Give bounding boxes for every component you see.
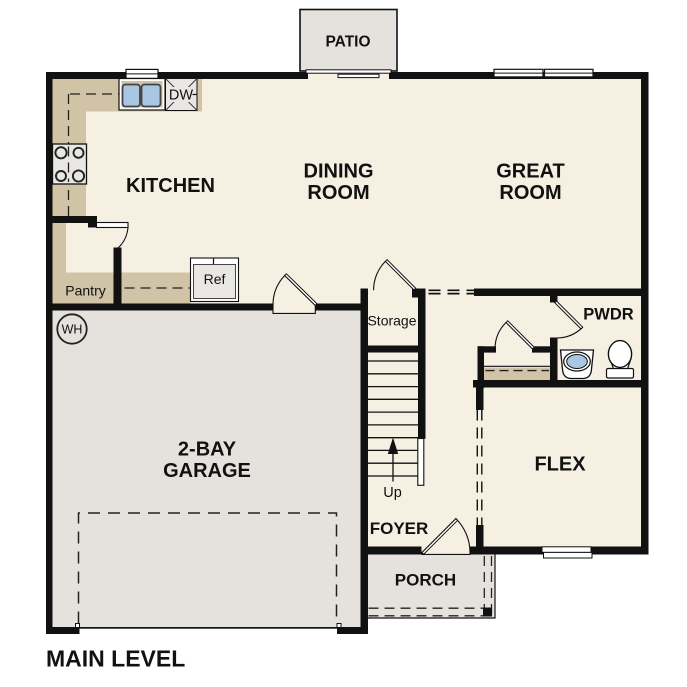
svg-text:Pantry: Pantry: [65, 283, 105, 299]
svg-text:WH: WH: [62, 323, 83, 337]
svg-text:PWDR: PWDR: [583, 306, 633, 324]
svg-text:2-BAY: 2-BAY: [178, 439, 237, 461]
svg-text:DINING: DINING: [304, 161, 374, 183]
svg-text:KITCHEN: KITCHEN: [126, 175, 215, 197]
svg-text:FOYER: FOYER: [370, 519, 429, 538]
svg-text:ROOM: ROOM: [499, 182, 561, 204]
svg-text:GREAT: GREAT: [496, 161, 565, 183]
svg-text:FLEX: FLEX: [534, 454, 586, 476]
svg-text:PATIO: PATIO: [325, 33, 370, 50]
svg-text:PORCH: PORCH: [395, 571, 456, 590]
svg-text:MAIN LEVEL: MAIN LEVEL: [46, 646, 185, 672]
svg-text:GARAGE: GARAGE: [163, 460, 251, 482]
svg-text:DW: DW: [169, 88, 193, 104]
svg-text:ROOM: ROOM: [307, 182, 369, 204]
svg-text:Up: Up: [383, 485, 402, 501]
svg-text:Storage: Storage: [367, 313, 416, 329]
svg-text:Ref: Ref: [204, 271, 226, 287]
